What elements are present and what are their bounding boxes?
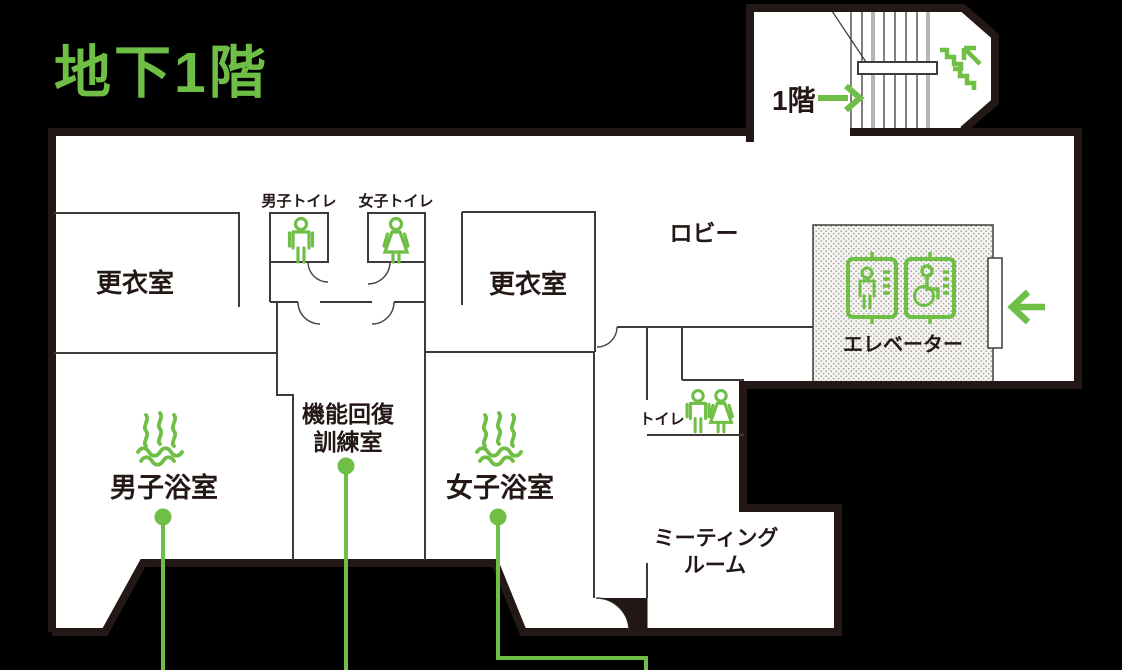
womens-toilet-label: 女子トイレ (358, 192, 433, 210)
lobby-label: ロビー (670, 220, 739, 246)
locker-left-label: 更衣室 (96, 268, 174, 298)
toilet-label: トイレ (639, 411, 684, 428)
training-room-label-line2: 訓練室 (314, 429, 383, 455)
womens-bath-label: 女子浴室 (446, 472, 554, 503)
stairwell-floor-label: 1階 (772, 85, 816, 116)
page-title: 地下1階 (54, 41, 269, 105)
floor-map-basement1: 地下1階 1階 更衣室 更衣室 男子トイレ 女子トイレ ロビー エレベーター 機… (0, 0, 1122, 670)
meeting-room-label-line2: ルーム (684, 554, 746, 577)
stair-landing (858, 62, 937, 74)
training-room-label-line1: 機能回復 (302, 401, 395, 427)
mens-toilet-label: 男子トイレ (261, 193, 336, 210)
mens-bath-label: 男子浴室 (110, 472, 218, 503)
elevator-door (988, 258, 1002, 348)
elevator-label: エレベーター (843, 333, 963, 356)
locker-right-label: 更衣室 (489, 269, 567, 299)
floor-plan-svg: 地下1階 1階 更衣室 更衣室 男子トイレ 女子トイレ ロビー エレベーター 機… (0, 0, 1122, 670)
elevator-zone (813, 225, 993, 382)
meeting-room-label-line1: ミーティング (654, 526, 779, 550)
